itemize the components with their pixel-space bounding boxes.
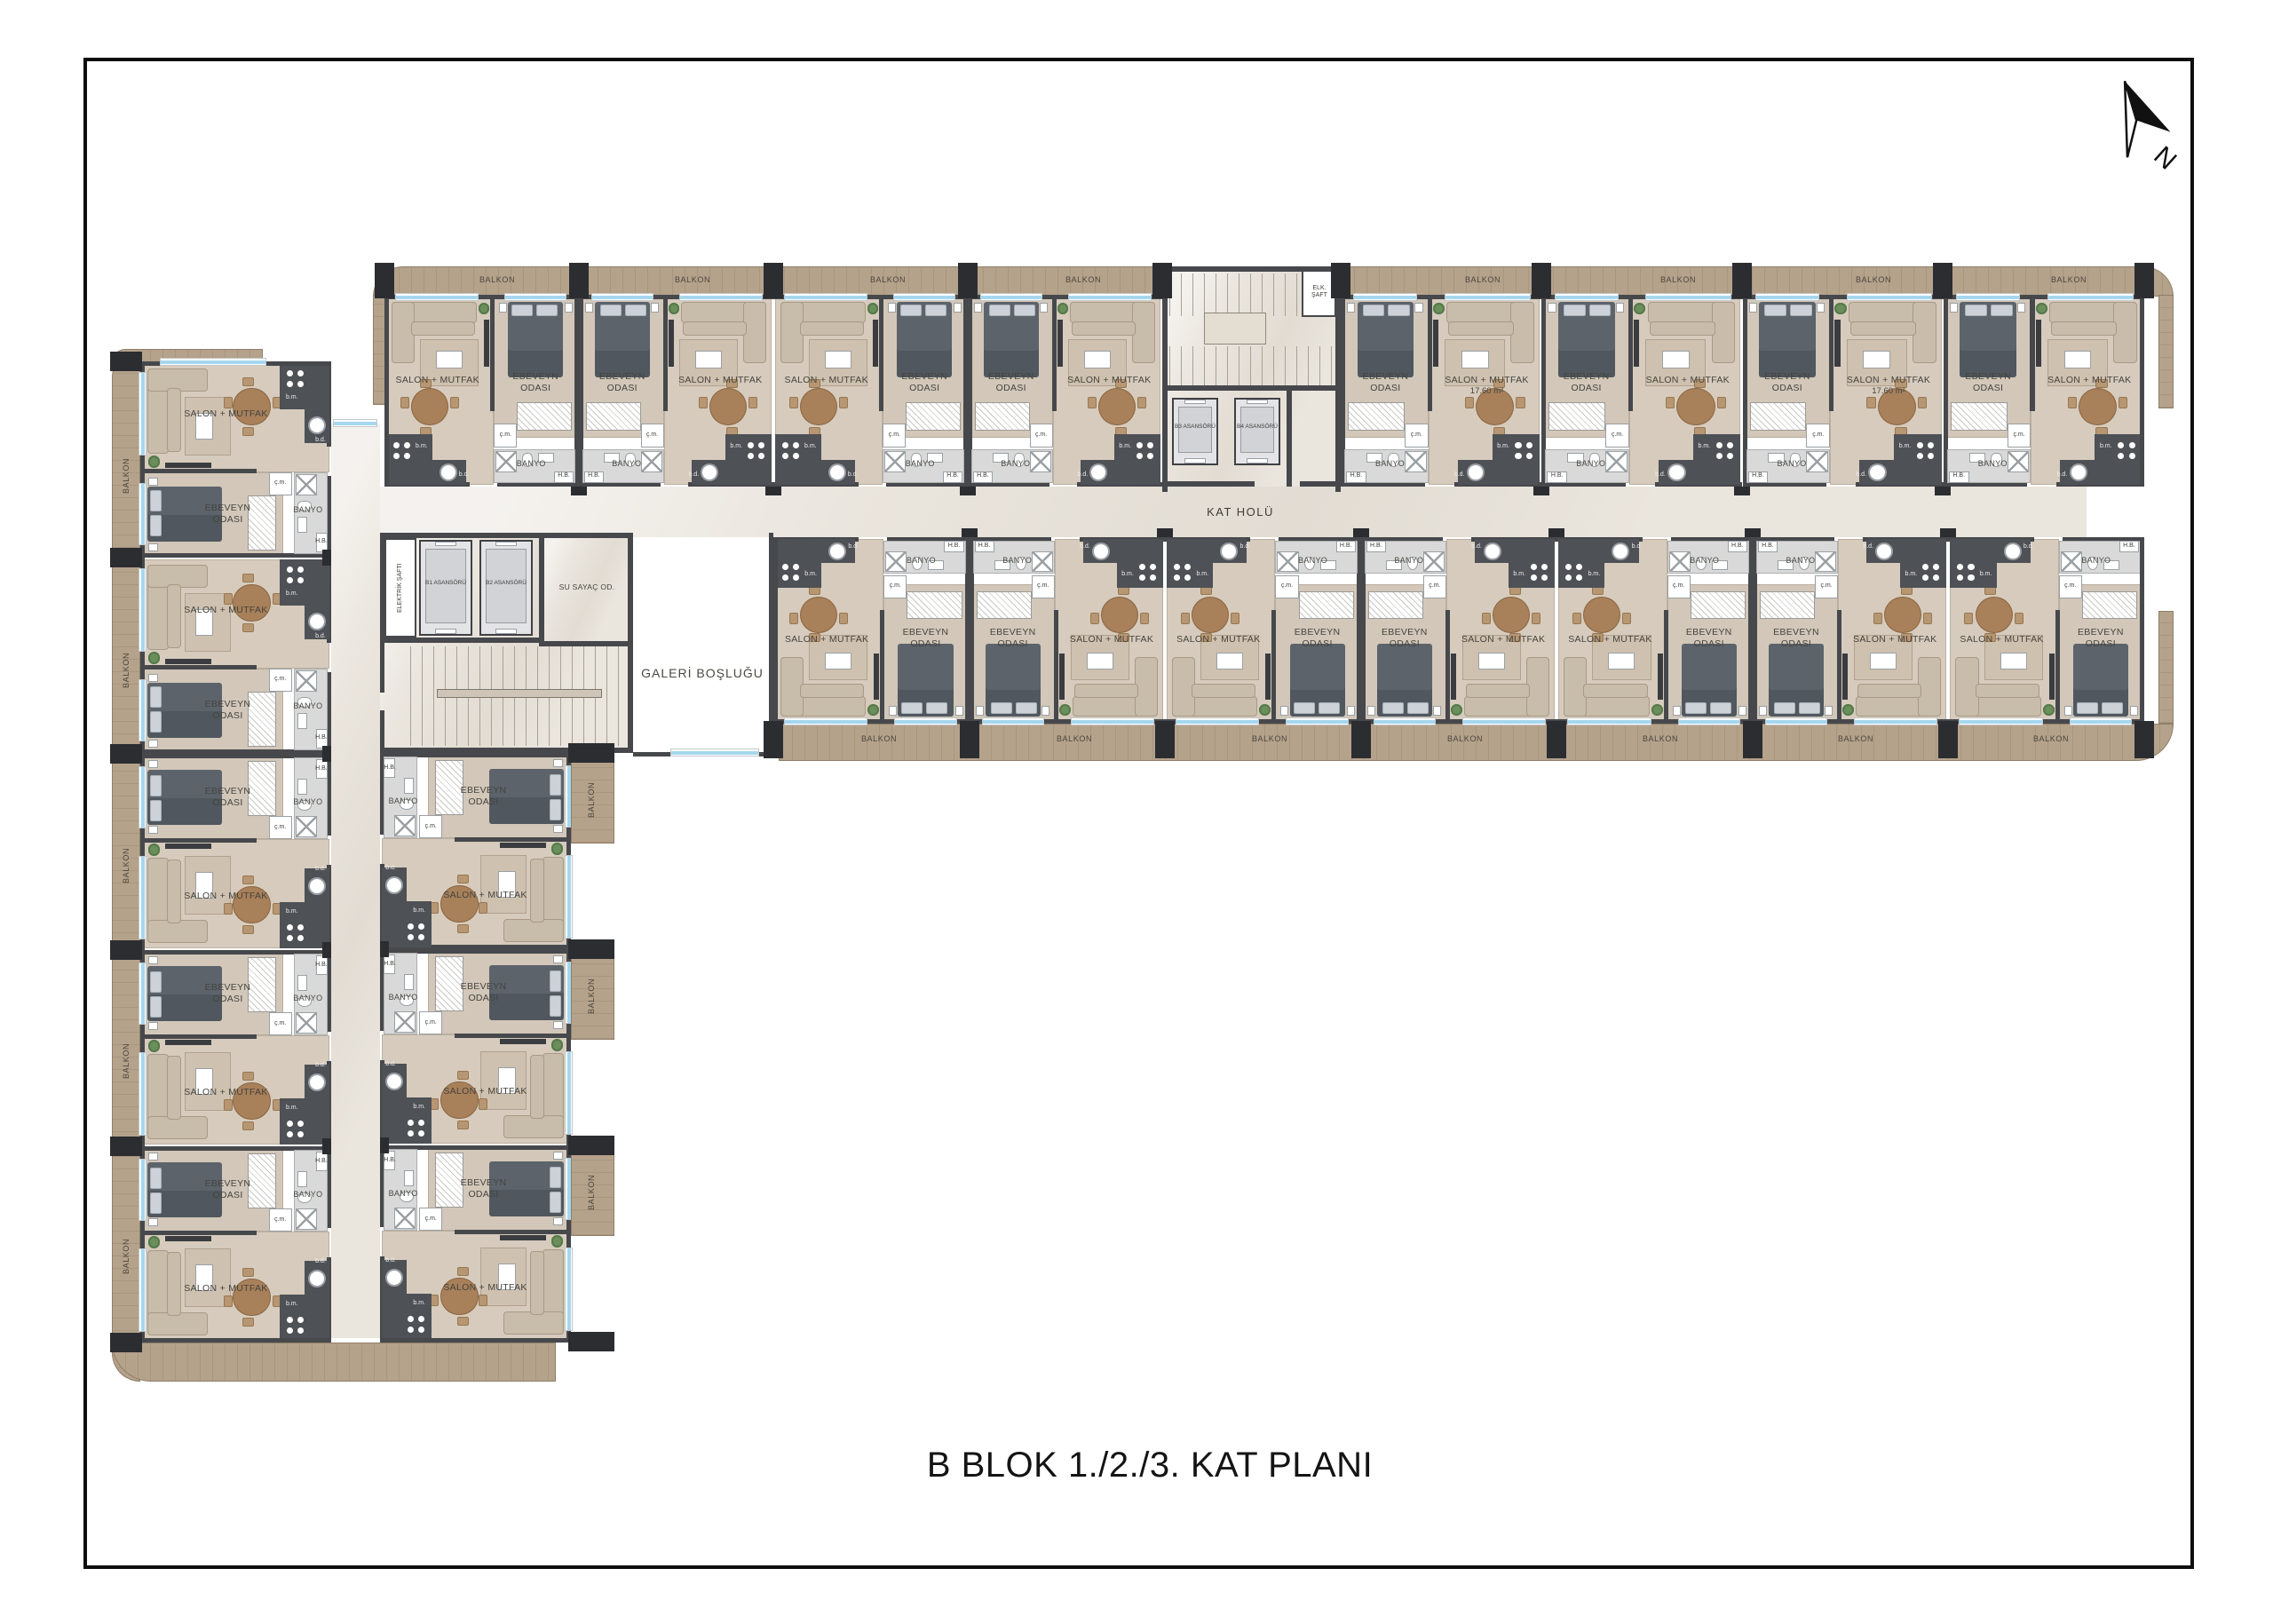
elevator-b1-door (435, 542, 456, 546)
dining-chair (457, 1317, 469, 1326)
dining-table (1493, 597, 1530, 633)
pillow (600, 305, 622, 316)
corridor-column (322, 746, 331, 762)
bd-label: b.d. (1850, 471, 1872, 480)
wardrobe (907, 591, 962, 619)
hb-label: H.B. (1758, 543, 1778, 551)
dining-chair (457, 924, 469, 933)
window-bedroom (1755, 293, 1819, 301)
bd-label: b.d. (843, 543, 864, 552)
salon-label: SALON + MUTFAK (172, 605, 279, 617)
pillow (150, 775, 162, 796)
burner-dot (1515, 453, 1521, 459)
sofa-seat (1857, 684, 1921, 698)
sink (404, 1170, 414, 1186)
dining-table (411, 388, 448, 425)
nightstand (565, 303, 573, 313)
salon-bedroom-wall (455, 1230, 569, 1234)
nightstand (553, 1217, 563, 1225)
corridor-column (380, 941, 389, 957)
pillow (1016, 702, 1037, 714)
burner-dot (2118, 442, 2124, 448)
shower (296, 1012, 317, 1034)
pillow (550, 774, 561, 796)
coffee-table (1087, 653, 1113, 670)
sofa-seat (2051, 321, 2117, 336)
dining-table (1884, 597, 1921, 633)
corridor-column (1940, 528, 1956, 537)
cm-label: ç.m. (495, 432, 516, 440)
washer-drum (308, 1270, 326, 1287)
nightstand (553, 1152, 563, 1160)
kitchen-counter (1950, 539, 1996, 588)
balcony-separator (1547, 721, 1566, 758)
wing-outer-wall (773, 537, 778, 724)
dining-chair (1231, 613, 1239, 624)
bedroom-label: EBEVEYN ODASI (455, 1177, 512, 1200)
burner-dot (2129, 442, 2135, 448)
burner-dot (287, 924, 293, 931)
window-salon (784, 717, 867, 725)
coffee-table (1084, 351, 1111, 368)
salon-bedroom-wall (142, 1231, 257, 1235)
balcony-separator (2134, 721, 2154, 758)
salon-bedroom-wall (1664, 610, 1668, 722)
cm-label: ç.m. (1816, 582, 1837, 590)
hb-label: H.B. (975, 543, 994, 551)
balcony-separator (1532, 263, 1551, 298)
elevator-b4-door (1247, 458, 1268, 463)
banyo-label: BANYO (384, 1189, 423, 1198)
dining-chair (224, 1099, 233, 1111)
burner-dot (287, 935, 293, 941)
coffee-table (1662, 351, 1690, 368)
sink (297, 517, 307, 533)
hb-label: H.B. (1366, 543, 1386, 551)
window-bedroom (1678, 717, 1740, 725)
salon-bedroom-wall (1628, 297, 1633, 411)
plant-icon (2036, 303, 2047, 314)
cm-label: ç.m. (2008, 432, 2030, 440)
bedroom-label: EBEVEYN ODASI (199, 982, 256, 1005)
nightstand (553, 955, 563, 963)
dining-chair (242, 623, 254, 632)
banyo-label: BANYO (289, 505, 328, 514)
burner-dot (1526, 453, 1532, 459)
window-salon (2047, 293, 2134, 301)
burner-dot (297, 935, 304, 941)
elevator-b4-label: B4 ASANSÖRÜ (1237, 424, 1278, 436)
balcony-separator (958, 263, 978, 298)
cm-label: ç.m. (1031, 432, 1052, 440)
balcony-separator (110, 548, 142, 567)
wing-outer-wall (2140, 537, 2144, 724)
window-salon (1567, 717, 1651, 725)
wing-outer-wall (140, 1338, 331, 1343)
bm-label: b.m. (281, 394, 303, 403)
hb-label: H.B. (1346, 472, 1366, 480)
window-salon (139, 372, 147, 456)
dining-chair (699, 397, 708, 408)
dining-table (1583, 597, 1620, 633)
pillow (1790, 305, 1812, 316)
burner-dot (1136, 453, 1143, 459)
pillow (900, 305, 922, 316)
floor-plan-page: N B BLOK 1./2./3. KAT PLANI BALKONBALKON… (0, 0, 2273, 1624)
plant-icon (1651, 704, 1663, 716)
cm-label: ç.m. (420, 823, 441, 831)
dining-table (1976, 597, 2013, 633)
balcony-label: BALKON (466, 275, 528, 288)
core1-wall (1162, 481, 1255, 487)
burner-dot (393, 453, 400, 459)
bd-label: b.d. (380, 1257, 401, 1266)
pillow (1407, 702, 1429, 714)
bedroom-label: EBEVEYN ODASI (1681, 627, 1738, 650)
core1-stair-flight (1169, 346, 1334, 387)
balcony-wrap-topwing-right (2158, 295, 2174, 408)
core1-wall (1287, 391, 1292, 487)
balcony-label-vertical: BALKON (586, 1166, 598, 1219)
nightstand (553, 759, 563, 767)
salon-bedroom-wall (2030, 297, 2034, 411)
kitchen-counter (1558, 539, 1604, 588)
coffee-table (1216, 653, 1243, 670)
tv-unit (669, 320, 674, 366)
balcony-label: BALKON (1842, 275, 1905, 288)
elk-shaft-label: ELK. ŞAFT (1304, 285, 1334, 301)
salon-bedroom-wall (142, 665, 257, 669)
wardrobe (975, 402, 1030, 431)
hb-label: H.B. (945, 543, 964, 551)
bd-label: b.d. (1466, 543, 1487, 552)
balcony-label: BALKON (1239, 734, 1301, 747)
bm-label: b.m. (1192, 571, 1213, 580)
cm-label: ç.m. (1406, 432, 1427, 440)
burner-dot (748, 453, 754, 459)
dining-chair (457, 1071, 469, 1080)
balcony-separator (110, 744, 142, 764)
window-bedroom (139, 1159, 147, 1221)
salon-bedroom-wall (1428, 297, 1432, 411)
balcony-separator (1938, 721, 1958, 758)
corridor-column (1935, 487, 1951, 495)
sofa-seat (1072, 321, 1136, 336)
bd-label: b.d. (1234, 543, 1255, 552)
salon-bedroom-wall (1829, 297, 1833, 411)
salon-label: SALON + MUTFAK (172, 891, 279, 903)
kitchen-counter (775, 539, 821, 588)
banyo-label: BANYO (1294, 556, 1333, 565)
dining-table (1192, 597, 1229, 633)
balcony-separator (1732, 263, 1752, 298)
gallery-label: GALERİ BOŞLUĞU (636, 666, 769, 678)
dining-chair (1088, 397, 1097, 408)
salon-bedroom-wall (1052, 297, 1057, 411)
pillow (150, 1192, 162, 1214)
window-salon (565, 855, 573, 939)
pillow (1710, 702, 1731, 714)
pillow (1799, 702, 1820, 714)
tv-unit (165, 1236, 211, 1241)
core2-wall (380, 638, 544, 643)
bm-label: b.m. (1895, 443, 1916, 452)
bedroom-label: EBEVEYN ODASI (1289, 627, 1346, 650)
window-salon (1854, 717, 1937, 725)
dining-chair (2068, 397, 2077, 408)
sink (297, 1171, 307, 1187)
bm-label: b.m. (1117, 571, 1138, 580)
pillow (511, 305, 533, 316)
nightstand (1041, 706, 1049, 716)
nightstand (148, 826, 158, 834)
balcony-separator (375, 263, 394, 298)
window-salon (1462, 717, 1546, 725)
dining-chair (1572, 613, 1581, 624)
bd-label: b.d. (454, 471, 475, 480)
cm-label: ç.m. (884, 582, 906, 590)
nightstand (553, 1021, 563, 1029)
wardrobe (1348, 402, 1405, 431)
wing-outer-wall (384, 295, 389, 487)
coffee-table (695, 351, 722, 368)
salon-label: SALON + MUTFAK (1841, 634, 1948, 646)
coffee-table (1870, 653, 1897, 670)
nightstand (148, 1153, 158, 1161)
bd-label: b.d. (310, 633, 331, 642)
balcony-label: BALKON (1434, 734, 1496, 747)
balcony-label-vertical: BALKON (586, 773, 598, 827)
dining-chair (1923, 613, 1932, 624)
hb-label: H.B. (312, 765, 331, 773)
salon-label: SALON + MUTFAK (1165, 634, 1271, 646)
salon-label: SALON + MUTFAK (1835, 375, 1942, 387)
salon-bedroom-wall (1271, 610, 1276, 722)
window-salon (1176, 717, 1259, 725)
bedroom-label: EBEVEYN ODASI (455, 981, 512, 1004)
window-salon (1068, 293, 1152, 301)
pillow (150, 971, 162, 993)
burner-dot (1526, 442, 1532, 448)
plant-icon (1059, 704, 1071, 716)
elevator-b3-label: B3 ASANSÖRÜ (1175, 424, 1216, 436)
shower (296, 1208, 317, 1230)
elevator-b2-door (495, 542, 517, 546)
shower (296, 816, 317, 837)
elevator-b4-door (1247, 400, 1268, 404)
balcony-label: BALKON (1052, 275, 1114, 288)
burner-dot (297, 577, 304, 583)
dining-table (1101, 597, 1138, 633)
balcony-label: BALKON (2038, 275, 2100, 288)
balcony-separator (568, 1136, 614, 1155)
floor-plan-drawing: BALKONBALKONBALKONBALKONBALKONBALKONBALK… (0, 0, 2273, 1624)
sofa-seat (1448, 321, 1514, 336)
banyo-label: BANYO (384, 796, 423, 805)
bedroom-label: EBEVEYN ODASI (983, 371, 1040, 394)
bm-label: b.m. (281, 1105, 303, 1113)
window-salon (1645, 293, 1731, 301)
sofa-arm (1526, 657, 1549, 717)
window-bedroom (504, 293, 566, 301)
nightstand (499, 303, 507, 313)
core2-wall (380, 710, 384, 753)
nightstand (2064, 706, 2072, 716)
sink (404, 974, 414, 990)
core2-wall (539, 533, 544, 646)
salon-label: SALON + MUTFAK (172, 1283, 279, 1295)
bedroom-label: EBEVEYN ODASI (2072, 627, 2129, 650)
bd-label: b.d. (2051, 471, 2072, 480)
bm-label: b.m. (281, 908, 303, 917)
bd-label: b.d. (683, 471, 704, 480)
dining-chair (242, 574, 254, 582)
nightstand (651, 303, 659, 313)
burner-dot (287, 566, 293, 573)
corridor-column (962, 528, 978, 537)
nightstand (1040, 303, 1048, 313)
tv-unit (873, 320, 878, 366)
core1-stair-landing (1204, 313, 1266, 345)
banyo-label: BANYO (289, 994, 328, 1002)
cm-label: ç.m. (1607, 432, 1628, 440)
window-bedroom (139, 963, 147, 1025)
window-bedroom (1353, 293, 1417, 301)
bm-label: b.m. (281, 1301, 303, 1310)
balcony-separator (568, 743, 614, 763)
bedroom-label: EBEVEYN ODASI (1357, 371, 1414, 394)
balcony-separator (1331, 263, 1350, 298)
bm-label: b.m. (408, 1300, 430, 1309)
nightstand (148, 956, 158, 964)
sofa-seat (683, 321, 747, 336)
window-salon (395, 293, 479, 301)
window-bedroom (894, 717, 956, 725)
bm-label: b.m. (725, 443, 747, 452)
corridor-column (322, 942, 331, 958)
dining-chair (1181, 613, 1190, 624)
elevator-b3-door (1184, 458, 1206, 463)
sofa-seat (1650, 321, 1715, 336)
sofa-arm (2113, 302, 2137, 363)
salon-bedroom-wall (663, 297, 668, 411)
nightstand (1759, 706, 1767, 716)
sofa-arm (1918, 657, 1941, 717)
banyo-label: BANYO (996, 459, 1035, 468)
nightstand (1433, 706, 1441, 716)
cm-label: ç.m. (270, 479, 291, 487)
burner-dot (758, 442, 764, 448)
salon-bedroom-wall (490, 297, 495, 411)
corridor-column (1533, 487, 1549, 495)
tv-unit (165, 844, 211, 849)
dining-chair (242, 1318, 254, 1327)
sink (297, 779, 307, 795)
pillow (901, 702, 923, 714)
wardrobe (2082, 591, 2137, 619)
burner-dot (404, 442, 410, 448)
balcony-separator (1743, 721, 1762, 758)
cm-label: ç.m. (270, 1020, 291, 1028)
nightstand (1950, 303, 1958, 313)
bd-label: b.d. (1627, 543, 1648, 552)
sofa-seat (1192, 684, 1255, 698)
sink (404, 778, 414, 794)
washer-drum (385, 1269, 403, 1287)
dining-chair (479, 1098, 487, 1110)
wardrobe (1368, 591, 1423, 619)
salon-bedroom-wall (142, 838, 257, 843)
balcony-separator (1351, 721, 1371, 758)
window-bedroom (1956, 293, 2020, 301)
burner-dot (2129, 453, 2135, 459)
bedroom-label: EBEVEYN ODASI (199, 786, 256, 809)
pillow (991, 702, 1012, 714)
cm-label: ç.m. (1668, 582, 1690, 590)
dining-chair (1482, 613, 1491, 624)
elevator-b3-door (1184, 400, 1206, 404)
pillow (1363, 305, 1385, 316)
core2-wall (380, 538, 384, 638)
salon-bedroom-wall (2055, 610, 2060, 722)
hb-label: H.B. (312, 538, 331, 546)
pillow (1014, 305, 1035, 316)
plant-icon (148, 1040, 160, 1051)
balcony-separator (110, 1333, 142, 1352)
balcony-label: BALKON (848, 734, 910, 747)
salon-label: SALON + MUTFAK (1556, 634, 1663, 646)
sofa-seat (411, 321, 475, 336)
balcony-separator (2134, 263, 2154, 298)
dining-table (800, 597, 837, 633)
dining-chair (1873, 613, 1882, 624)
dining-chair (1666, 397, 1675, 408)
nightstand (148, 478, 158, 486)
burner-dot (297, 1317, 304, 1323)
salon-label: SALON + MUTFAK (172, 1087, 279, 1099)
nightstand (1414, 303, 1422, 313)
balcony-label-vertical: BALKON (120, 642, 132, 699)
dining-chair (2119, 397, 2127, 408)
pillow (150, 800, 162, 821)
banyo-label: BANYO (2077, 556, 2116, 565)
bedroom-label: EBEVEYN ODASI (199, 699, 256, 722)
burner-dot (1727, 453, 1733, 459)
plant-icon (2043, 704, 2055, 716)
wardrobe (586, 402, 641, 431)
tv-unit (500, 843, 546, 848)
balcony-label-vertical: BALKON (586, 970, 598, 1023)
plant-icon (551, 1039, 563, 1050)
cm-label: ç.m. (2060, 582, 2081, 590)
bm-label: b.m. (800, 571, 821, 580)
tv-unit (1634, 320, 1639, 366)
window-salon (139, 856, 147, 939)
bedroom-label: EBEVEYN ODASI (897, 627, 954, 650)
hb-label: H.B. (1728, 543, 1747, 551)
nightstand (1749, 303, 1757, 313)
cm-label: ç.m. (1424, 582, 1445, 590)
electric-shaft-label: ELEKTRİK ŞAFTI (395, 545, 406, 630)
burner-dot (297, 924, 304, 931)
nightstand (148, 1022, 158, 1030)
pillow (550, 1167, 561, 1188)
dining-chair (400, 397, 409, 408)
burner-dot (287, 1317, 293, 1323)
tv-unit (2036, 320, 2041, 366)
salon-area-label: 17.60 m² (1452, 387, 1523, 400)
plant-icon (148, 652, 160, 663)
